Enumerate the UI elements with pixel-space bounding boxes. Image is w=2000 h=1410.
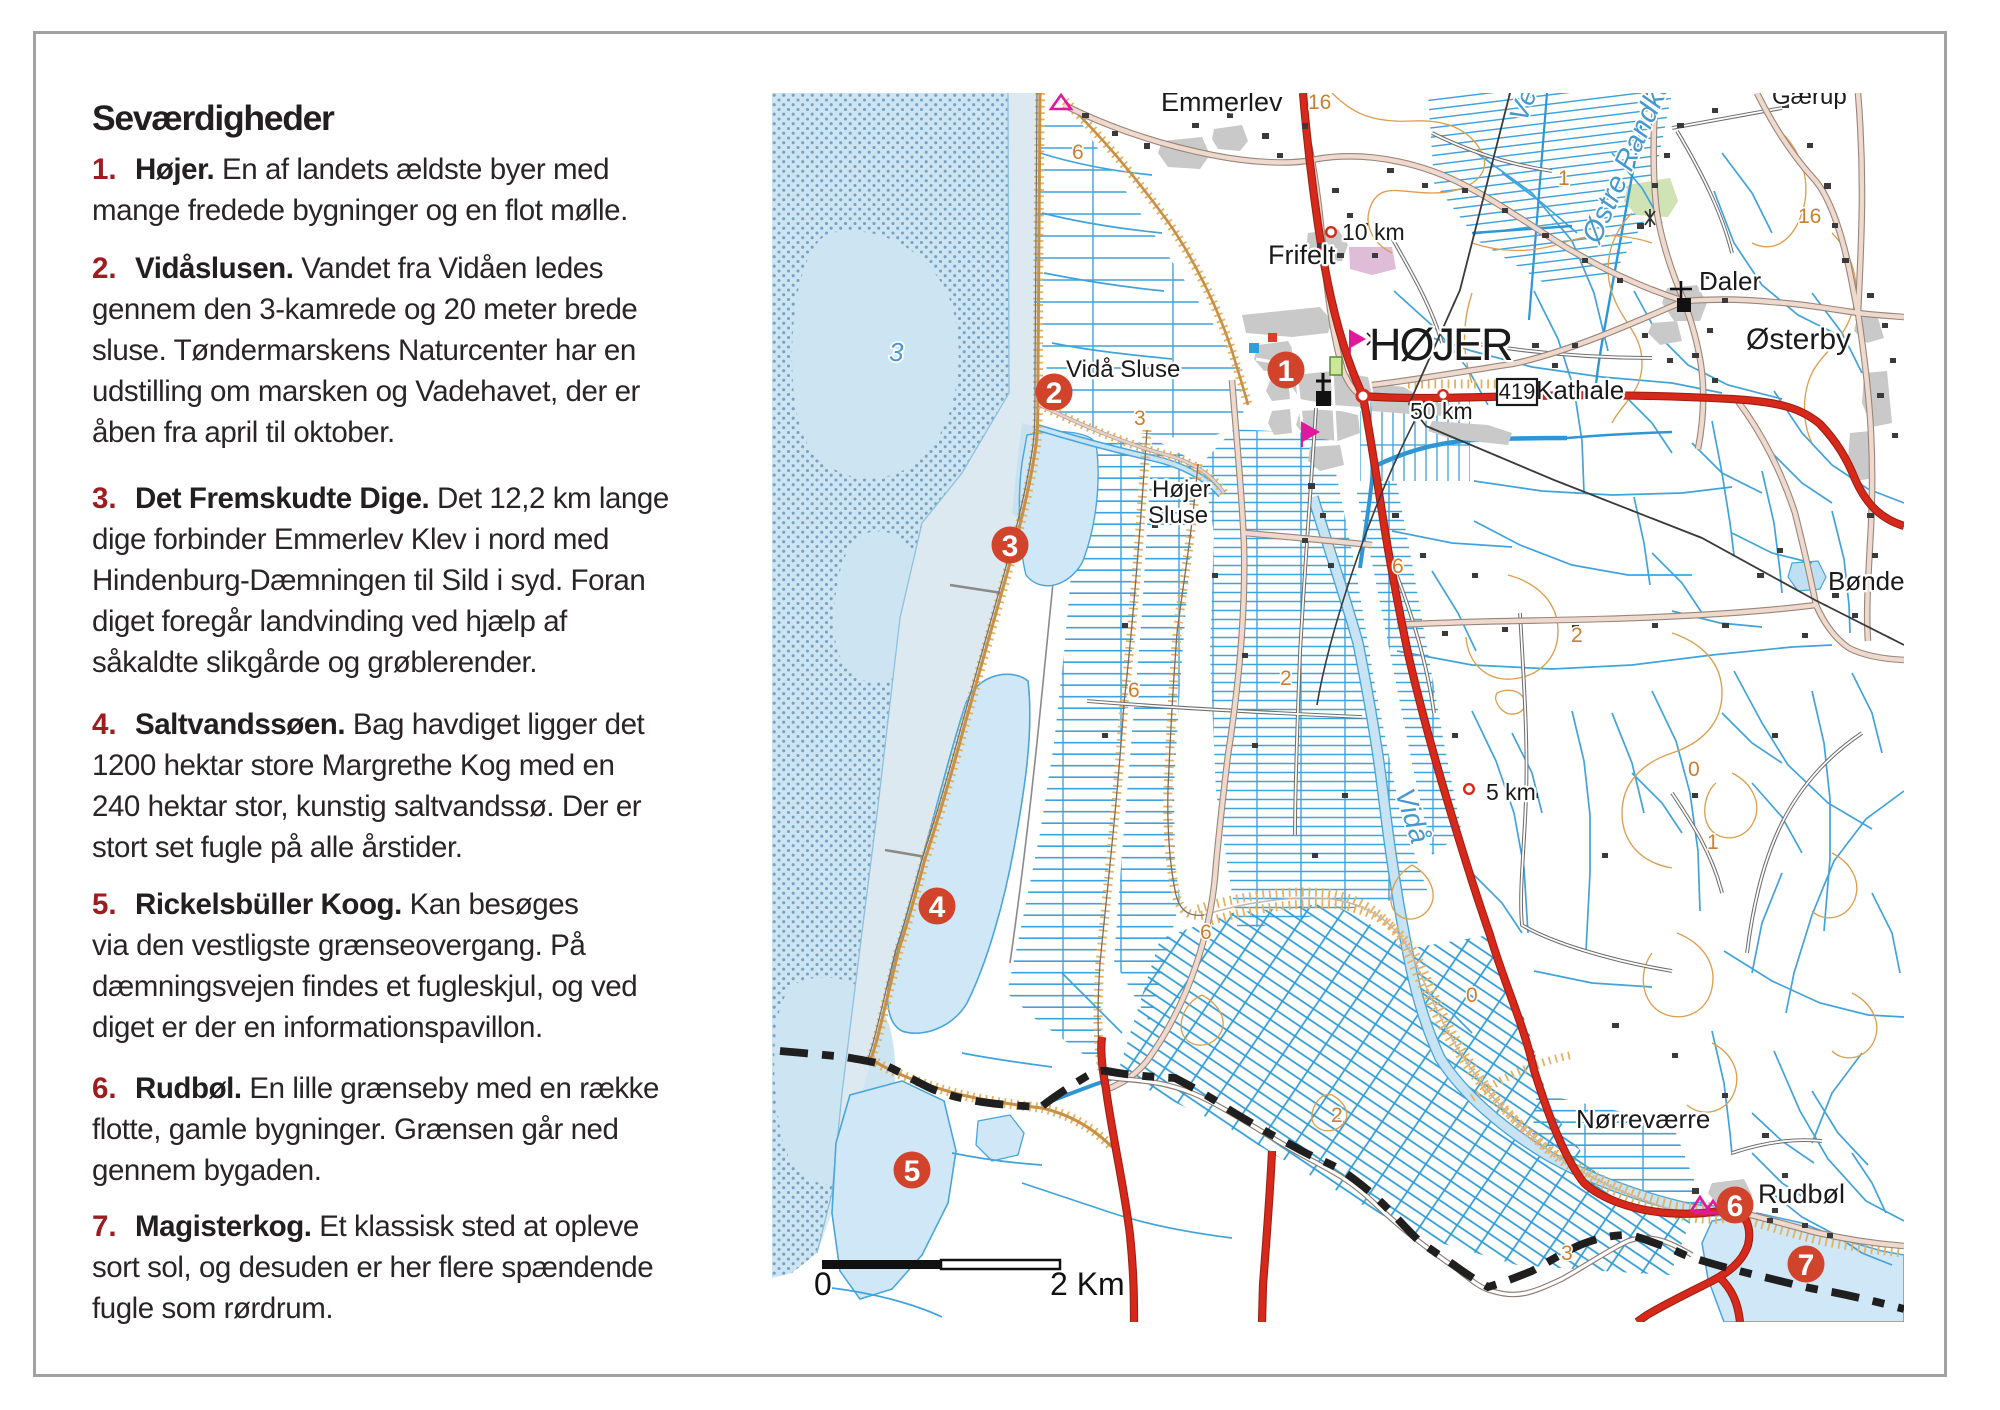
svg-text:Bønderb: Bønderb: [1828, 566, 1904, 596]
svg-text:6: 6: [1392, 555, 1404, 578]
svg-text:HØJER: HØJER: [1369, 319, 1512, 370]
svg-text:5 km: 5 km: [1486, 779, 1536, 805]
svg-text:16: 16: [1308, 93, 1331, 114]
svg-text:Daler: Daler: [1699, 266, 1761, 296]
svg-text:6: 6: [1200, 921, 1212, 944]
svg-text:1: 1: [1558, 167, 1570, 190]
svg-text:Højer: Højer: [1152, 476, 1211, 503]
svg-text:10 km: 10 km: [1342, 219, 1405, 245]
svg-text:0: 0: [1466, 984, 1478, 1007]
svg-text:16: 16: [1798, 205, 1821, 228]
svg-text:7: 7: [1798, 1249, 1815, 1282]
svg-text:Østerby: Østerby: [1746, 323, 1851, 356]
svg-text:0: 0: [814, 1266, 832, 1302]
svg-text:1: 1: [1707, 831, 1719, 854]
svg-text:6: 6: [1128, 679, 1140, 702]
svg-text:2 Km: 2 Km: [1050, 1266, 1125, 1302]
svg-text:419: 419: [1499, 379, 1536, 404]
svg-text:Vidå Sluse: Vidå Sluse: [1066, 356, 1180, 383]
svg-text:Gærup: Gærup: [1772, 93, 1847, 110]
svg-text:2: 2: [1280, 667, 1292, 690]
svg-text:50 km: 50 km: [1410, 398, 1473, 424]
svg-text:3: 3: [1002, 530, 1019, 563]
svg-text:Sluse: Sluse: [1148, 502, 1208, 529]
svg-text:Rudbøl: Rudbøl: [1758, 1179, 1845, 1209]
svg-text:6: 6: [1072, 141, 1084, 164]
svg-text:2: 2: [1571, 624, 1583, 647]
svg-text:3: 3: [889, 337, 904, 367]
svg-text:1: 1: [1278, 355, 1295, 388]
svg-text:Kathale: Kathale: [1536, 375, 1624, 405]
svg-text:0: 0: [1688, 758, 1700, 781]
svg-text:2: 2: [1331, 1104, 1343, 1127]
svg-text:3: 3: [1134, 407, 1146, 430]
svg-text:Nørreværre: Nørreværre: [1576, 1104, 1710, 1134]
svg-text:4: 4: [929, 891, 946, 924]
svg-text:Frifelt: Frifelt: [1268, 240, 1336, 270]
svg-text:2: 2: [1046, 377, 1063, 410]
svg-text:6: 6: [1727, 1190, 1744, 1223]
svg-text:3: 3: [1561, 1242, 1573, 1265]
svg-text:5: 5: [904, 1155, 921, 1188]
svg-text:Emmerlev: Emmerlev: [1161, 93, 1283, 117]
